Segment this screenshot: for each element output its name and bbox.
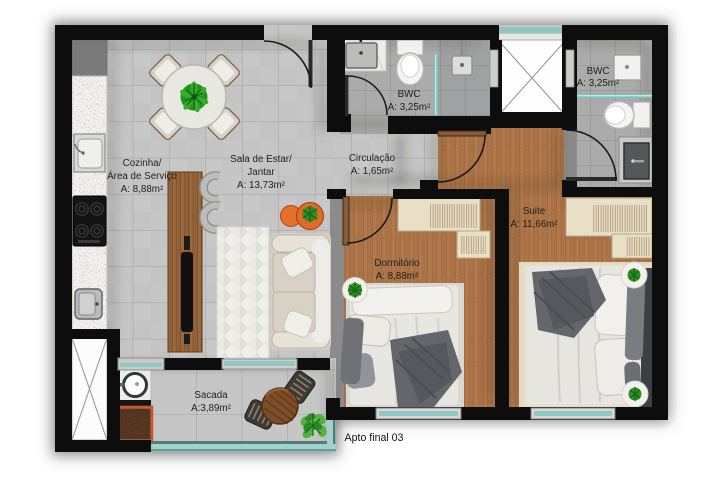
svg-text:A: 1,65m²: A: 1,65m² [351,166,394,177]
svg-text:Sala de Estar/: Sala de Estar/ [230,154,292,165]
svg-text:A:3,89m²: A:3,89m² [191,403,231,414]
svg-text:Dormitório: Dormitório [374,258,420,269]
svg-text:A: 3,25m²: A: 3,25m² [577,78,620,89]
svg-text:Área de Serviço: Área de Serviço [107,171,177,182]
svg-text:Jantar: Jantar [247,167,275,178]
svg-text:BWC: BWC [587,66,610,77]
svg-text:Suite: Suite [523,206,546,217]
svg-text:Apto final 03: Apto final 03 [345,432,404,444]
svg-text:Circulação: Circulação [349,153,396,164]
svg-text:BWC: BWC [398,89,421,100]
svg-text:Cozinha/: Cozinha/ [123,158,162,169]
svg-text:A: 8,88m²: A: 8,88m² [376,271,419,282]
svg-text:A: 8,88m²: A: 8,88m² [121,184,164,195]
svg-text:Sacada: Sacada [194,390,228,401]
svg-text:A: 11,66m²: A: 11,66m² [510,219,558,230]
svg-text:A: 3,25m²: A: 3,25m² [388,102,431,113]
svg-text:A: 13,73m²: A: 13,73m² [237,180,286,191]
